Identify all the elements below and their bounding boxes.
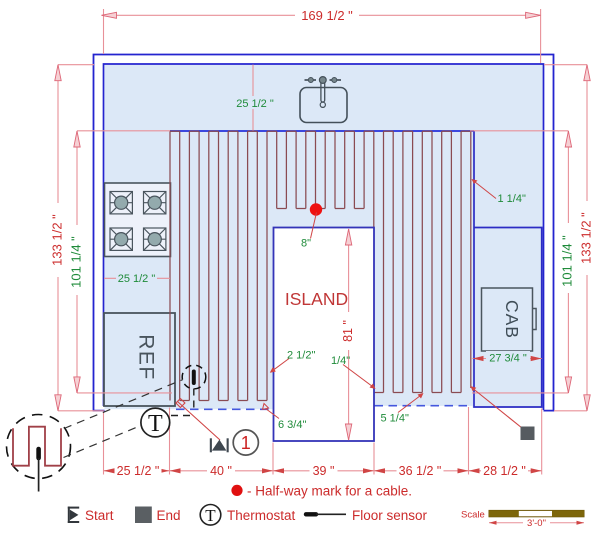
svg-text:1/4": 1/4" [331,355,350,367]
svg-text:T: T [205,506,216,525]
svg-text:Floor sensor: Floor sensor [352,508,428,523]
svg-text:8": 8" [301,238,311,250]
svg-text:1 1/4": 1 1/4" [498,193,526,205]
svg-text:2 1/2": 2 1/2" [287,349,315,361]
svg-text:27 3/4 ": 27 3/4 " [489,353,527,365]
svg-text:28 1/2 ": 28 1/2 " [483,464,526,478]
svg-text:101 1/4 ": 101 1/4 " [69,236,84,288]
svg-text:6 3/4": 6 3/4" [278,419,306,431]
svg-text:133 1/2 ": 133 1/2 " [579,212,594,264]
svg-text:Scale: Scale [461,510,485,521]
svg-text:81 ": 81 " [341,320,355,342]
svg-text:25 1/2 ": 25 1/2 " [236,98,274,110]
svg-text:36 1/2 ": 36 1/2 " [399,464,442,478]
svg-text:Start: Start [85,508,114,523]
svg-text:39 ": 39 " [313,464,335,478]
svg-text:25 1/2 ": 25 1/2 " [117,464,160,478]
svg-text:3'-0": 3'-0" [527,518,546,529]
svg-text:101 1/4 ": 101 1/4 " [560,235,575,287]
svg-text:- Half-way mark for a cable.: - Half-way mark for a cable. [247,483,412,498]
svg-text:169 1/2 ": 169 1/2 " [301,8,353,23]
svg-text:ISLAND: ISLAND [285,289,348,309]
svg-text:133 1/2 ": 133 1/2 " [50,214,65,266]
svg-text:CAB: CAB [502,300,522,339]
svg-text:25 1/2 ": 25 1/2 " [118,273,156,285]
svg-text:1: 1 [241,433,251,453]
svg-text:T: T [148,411,163,437]
svg-text:REF: REF [135,334,158,381]
svg-text:End: End [157,508,181,523]
svg-text:Thermostat: Thermostat [227,508,296,523]
svg-text:40 ": 40 " [210,464,232,478]
svg-text:5 1/4": 5 1/4" [381,413,409,425]
